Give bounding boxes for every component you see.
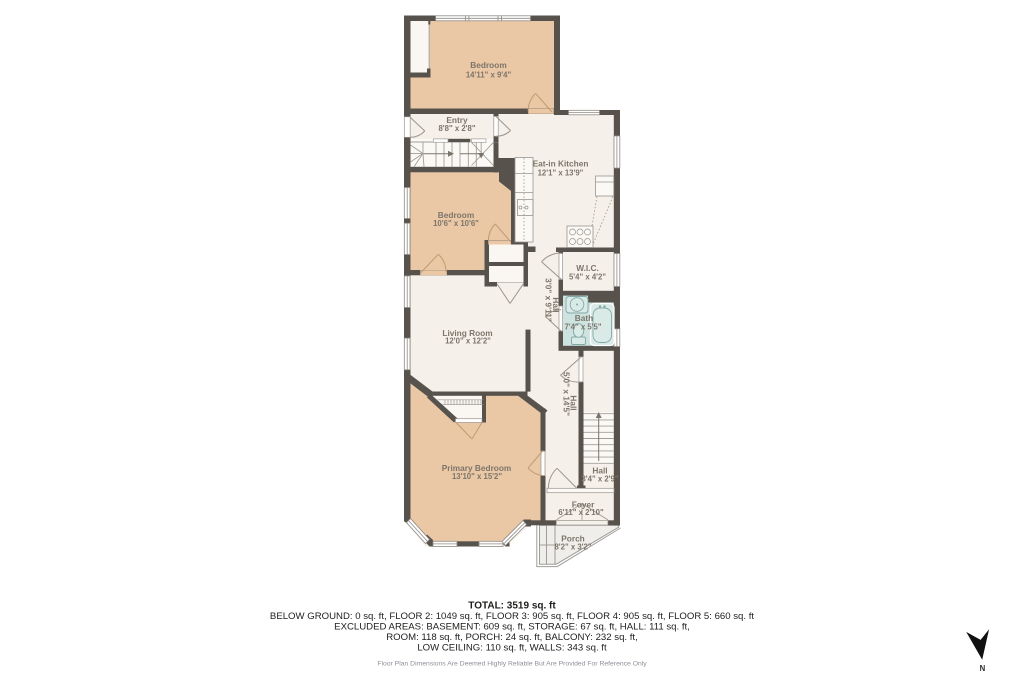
svg-text:N: N: [980, 664, 986, 673]
svg-text:LOW CEILING: 110 sq. ft, WALLS: LOW CEILING: 110 sq. ft, WALLS: 343 sq. …: [417, 643, 607, 654]
svg-text:EXCLUDED AREAS: BASEMENT: 609: EXCLUDED AREAS: BASEMENT: 609 sq. ft, ST…: [334, 622, 690, 633]
svg-text:Bath: Bath: [575, 313, 593, 323]
svg-text:6'11" x 2'10": 6'11" x 2'10": [558, 508, 604, 517]
svg-text:8'8" x 2'8": 8'8" x 2'8": [438, 124, 475, 133]
svg-text:13'10" x 15'2": 13'10" x 15'2": [452, 472, 502, 481]
svg-text:12'1" x 13'9": 12'1" x 13'9": [538, 169, 584, 178]
svg-text:5'4" x 4'2": 5'4" x 4'2": [569, 273, 606, 282]
svg-text:Eat-in Kitchen: Eat-in Kitchen: [533, 159, 589, 169]
svg-text:TOTAL: 3519 sq. ft: TOTAL: 3519 sq. ft: [468, 601, 556, 612]
svg-text:3'4" x 2'9": 3'4" x 2'9": [581, 475, 618, 484]
svg-text:W.I.C.: W.I.C.: [576, 263, 599, 273]
svg-text:14'11" x 9'4": 14'11" x 9'4": [466, 71, 512, 80]
svg-text:BELOW GROUND: 0 sq. ft, FLOOR: BELOW GROUND: 0 sq. ft, FLOOR 2: 1049 sq…: [270, 611, 754, 622]
svg-text:ROOM: 118 sq. ft, PORCH: 24 sq: ROOM: 118 sq. ft, PORCH: 24 sq. ft, BALC…: [386, 632, 637, 643]
svg-text:10'6" x 10'6": 10'6" x 10'6": [433, 219, 479, 228]
svg-text:Bedroom: Bedroom: [470, 60, 506, 70]
svg-text:Floor Plan Dimensions Are Deem: Floor Plan Dimensions Are Deemed Highly …: [377, 661, 647, 668]
svg-text:3'0" x 9'11": 3'0" x 9'11": [544, 278, 554, 322]
svg-text:5'0" x 14'5": 5'0" x 14'5": [562, 372, 572, 416]
svg-text:7'4" x 5'5": 7'4" x 5'5": [564, 323, 601, 332]
svg-text:8'2" x 3'2": 8'2" x 3'2": [554, 543, 591, 552]
svg-text:12'0" x 12'2": 12'0" x 12'2": [445, 337, 491, 346]
